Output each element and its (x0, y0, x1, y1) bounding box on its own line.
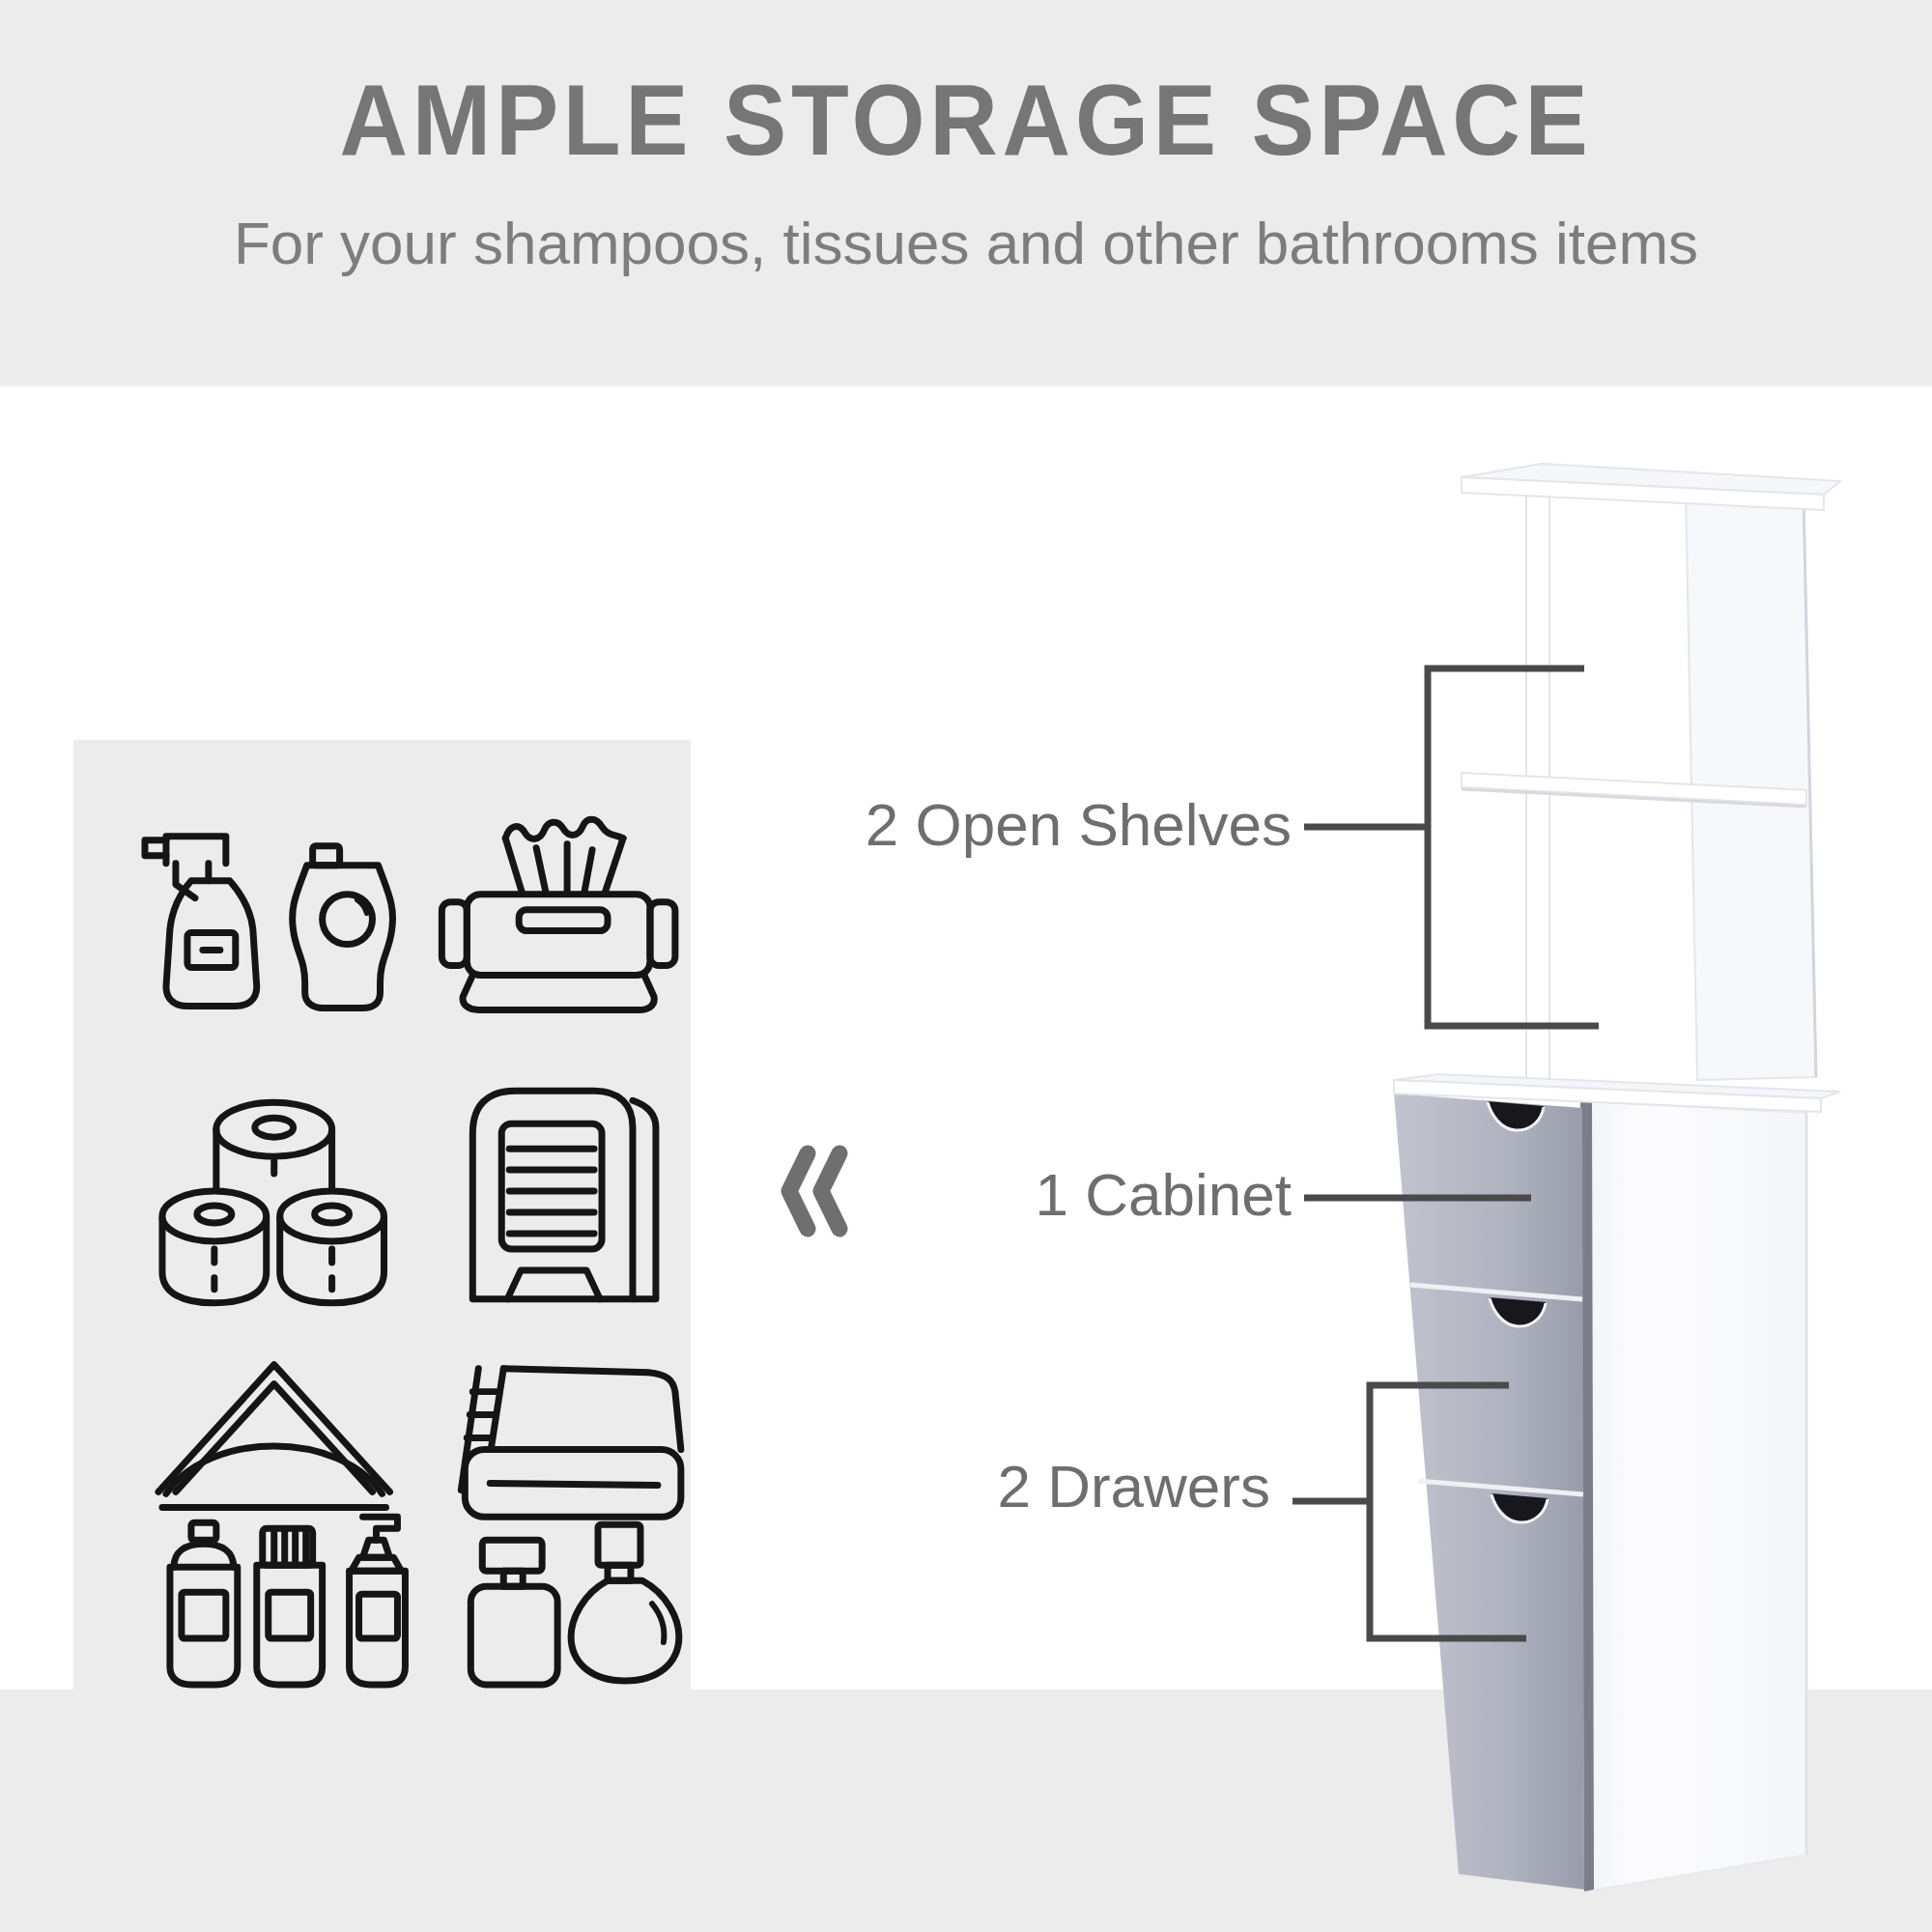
toiletry-spray-bottles-icon (170, 1517, 406, 1685)
cabinet-callout-label: 1 Cabinet (1036, 1165, 1292, 1225)
wet-wipes-pack-icon (441, 819, 675, 1009)
perfume-bottles-icon (470, 1524, 679, 1685)
folded-towel-icon (461, 1369, 681, 1518)
toilet-paper-rolls-icon (162, 1102, 384, 1303)
napkin-holder-icon (158, 1365, 390, 1508)
header-band (0, 0, 1932, 386)
paper-towel-dispenser-icon (472, 1091, 656, 1299)
drawers-callout-label: 2 Drawers (997, 1457, 1270, 1517)
shelves-callout-label: 2 Open Shelves (866, 795, 1292, 855)
page-subtitle: For your shampoos, tissues and other bat… (0, 213, 1932, 273)
open-shelves-section (1462, 464, 1840, 1086)
double-chevron-left-icon (789, 1153, 839, 1229)
page-title: AMPLE STORAGE SPACE (58, 70, 1874, 170)
bathroom-items-icons (73, 740, 691, 1690)
product-image-storage-tower (1352, 425, 1855, 1913)
cabinet-section (1394, 1074, 1840, 1891)
cabinet-side-panel (1584, 1101, 1806, 1890)
bathroom-items-icon-panel (73, 740, 691, 1690)
spray-and-soap-bottles-icon (145, 837, 393, 1009)
